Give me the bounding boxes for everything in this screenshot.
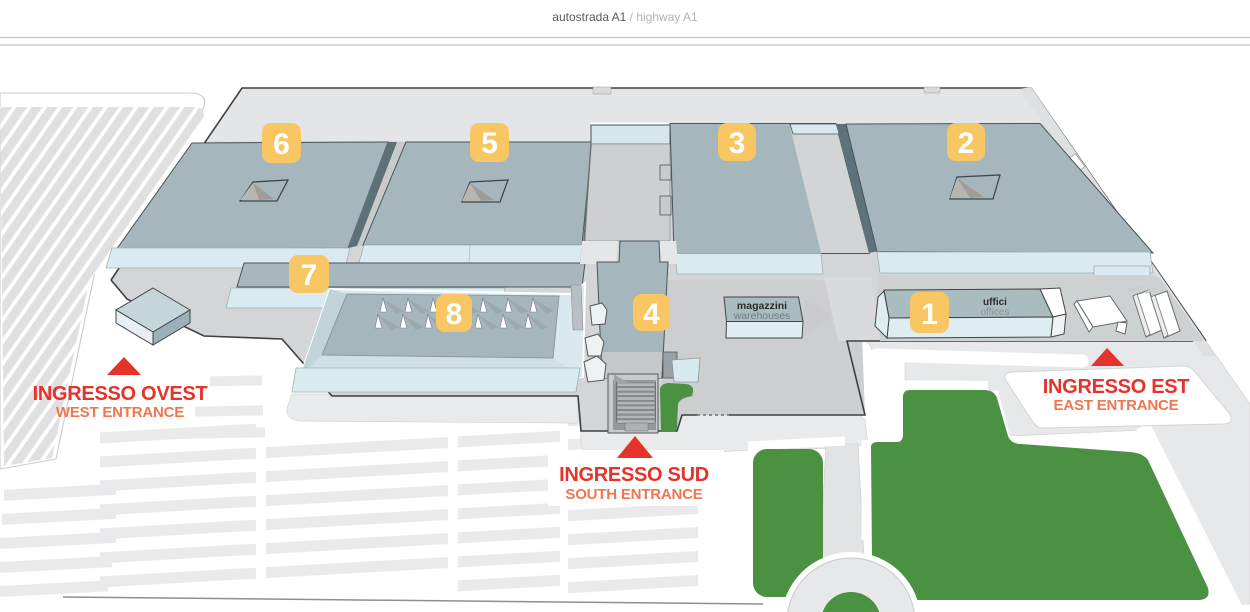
svg-text:autostrada A1 / highway A1: autostrada A1 / highway A1 — [552, 10, 698, 24]
svg-text:INGRESSO OVEST: INGRESSO OVEST — [33, 383, 208, 405]
svg-text:4: 4 — [643, 298, 660, 331]
svg-text:2: 2 — [958, 127, 975, 160]
svg-text:offices: offices — [981, 307, 1010, 318]
svg-text:5: 5 — [481, 127, 498, 160]
svg-text:INGRESSO EST: INGRESSO EST — [1043, 376, 1190, 398]
svg-text:SOUTH ENTRANCE: SOUTH ENTRANCE — [565, 486, 702, 503]
svg-text:6: 6 — [273, 128, 290, 161]
svg-text:8: 8 — [446, 298, 463, 331]
svg-text:7: 7 — [301, 259, 318, 292]
svg-text:1: 1 — [921, 298, 938, 331]
svg-text:EAST ENTRANCE: EAST ENTRANCE — [1054, 397, 1179, 414]
svg-text:WEST ENTRANCE: WEST ENTRANCE — [56, 404, 184, 421]
svg-text:INGRESSO SUD: INGRESSO SUD — [559, 464, 709, 486]
svg-text:warehouses: warehouses — [733, 310, 791, 322]
svg-text:3: 3 — [729, 127, 746, 160]
